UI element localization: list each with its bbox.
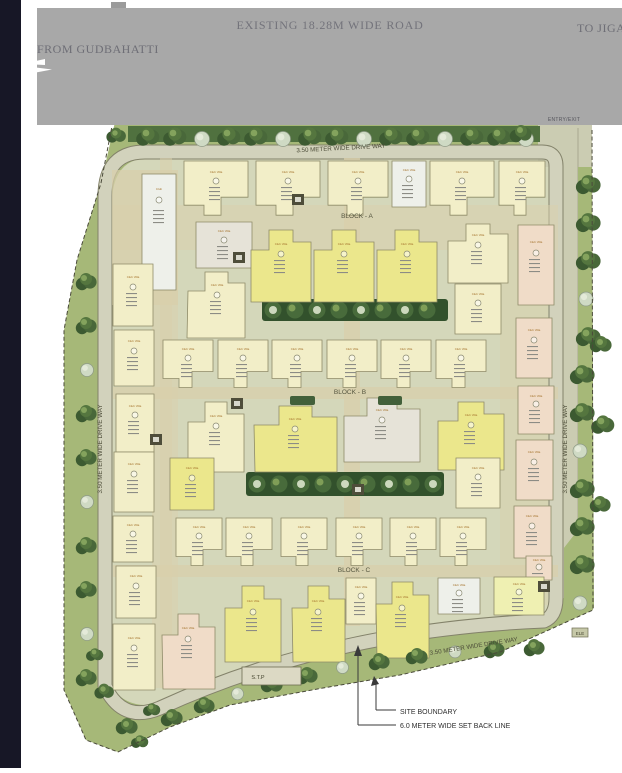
svg-text:Club Villa: Club Villa	[407, 525, 420, 529]
svg-text:Club Villa: Club Villa	[516, 170, 529, 174]
svg-text:BLOCK - A: BLOCK - A	[341, 213, 373, 220]
svg-text:Club Villa: Club Villa	[403, 168, 416, 172]
svg-text:Club Villa: Club Villa	[338, 242, 351, 246]
svg-text:Club Villa: Club Villa	[528, 450, 541, 454]
svg-text:Club Villa: Club Villa	[182, 626, 195, 630]
svg-text:Club Villa: Club Villa	[247, 599, 260, 603]
svg-text:Club Villa: Club Villa	[401, 242, 414, 246]
svg-text:Club Villa: Club Villa	[128, 636, 141, 640]
svg-text:Club Villa: Club Villa	[298, 525, 311, 529]
svg-text:Club Villa: Club Villa	[528, 328, 541, 332]
svg-text:SITE BOUNDARY: SITE BOUNDARY	[400, 709, 457, 716]
svg-text:EXISTING 18.28M WIDE ROAD: EXISTING 18.28M WIDE ROAD	[236, 18, 423, 32]
svg-text:Club Villa: Club Villa	[453, 583, 466, 587]
svg-text:Club Villa: Club Villa	[533, 558, 546, 562]
svg-text:Club: Club	[156, 187, 163, 191]
svg-text:3.50 METER WIDE DRIVE WAY: 3.50 METER WIDE DRIVE WAY	[562, 404, 569, 493]
svg-text:Club Villa: Club Villa	[282, 170, 295, 174]
svg-text:Club Villa: Club Villa	[243, 525, 256, 529]
svg-text:Club Villa: Club Villa	[289, 417, 302, 421]
svg-text:Club Villa: Club Villa	[275, 242, 288, 246]
svg-text:Club Villa: Club Villa	[210, 170, 223, 174]
svg-text:Club Villa: Club Villa	[526, 514, 539, 518]
svg-text:Club Villa: Club Villa	[210, 414, 223, 418]
svg-text:ELE: ELE	[576, 631, 585, 636]
svg-text:Club Villa: Club Villa	[513, 582, 526, 586]
svg-text:Club Villa: Club Villa	[400, 347, 413, 351]
svg-text:Club Villa: Club Villa	[353, 525, 366, 529]
svg-text:Club Villa: Club Villa	[129, 404, 142, 408]
svg-text:TO JIGANI: TO JIGANI	[577, 21, 622, 35]
svg-text:Club Villa: Club Villa	[211, 283, 224, 287]
svg-text:Club Villa: Club Villa	[218, 229, 231, 233]
svg-text:Club Villa: Club Villa	[193, 525, 206, 529]
svg-text:Club Villa: Club Villa	[237, 347, 250, 351]
svg-text:Club Villa: Club Villa	[127, 275, 140, 279]
svg-text:Club Villa: Club Villa	[465, 413, 478, 417]
svg-text:Club Villa: Club Villa	[352, 170, 365, 174]
svg-text:Club Villa: Club Villa	[355, 585, 368, 589]
svg-text:Club Villa: Club Villa	[456, 170, 469, 174]
svg-text:Club Villa: Club Villa	[472, 466, 485, 470]
svg-text:Club Villa: Club Villa	[291, 347, 304, 351]
svg-text:Club Villa: Club Villa	[472, 292, 485, 296]
svg-text:S.T.P: S.T.P	[251, 675, 264, 681]
svg-text:FROM GUDBAHATTI: FROM GUDBAHATTI	[37, 42, 159, 56]
svg-text:Club Villa: Club Villa	[128, 462, 141, 466]
svg-text:Club Villa: Club Villa	[376, 408, 389, 412]
svg-text:Club Villa: Club Villa	[186, 466, 199, 470]
svg-text:Club Villa: Club Villa	[130, 574, 143, 578]
svg-text:Club Villa: Club Villa	[472, 233, 485, 237]
svg-text:Club Villa: Club Villa	[396, 595, 409, 599]
svg-text:3.50 METER WIDE DRIVE WAY: 3.50 METER WIDE DRIVE WAY	[97, 404, 104, 493]
svg-text:Club Villa: Club Villa	[530, 394, 543, 398]
svg-text:Club Villa: Club Villa	[457, 525, 470, 529]
svg-text:Club Villa: Club Villa	[127, 523, 140, 527]
svg-text:Club Villa: Club Villa	[182, 347, 195, 351]
svg-text:ENTRY/EXIT: ENTRY/EXIT	[548, 117, 580, 123]
svg-text:BLOCK - C: BLOCK - C	[338, 567, 371, 574]
svg-text:Club Villa: Club Villa	[346, 347, 359, 351]
svg-text:BLOCK - B: BLOCK - B	[334, 389, 366, 396]
svg-text:Club Villa: Club Villa	[312, 599, 325, 603]
svg-text:Club Villa: Club Villa	[455, 347, 468, 351]
svg-text:Club Villa: Club Villa	[128, 339, 141, 343]
svg-text:6.0 METER WIDE SET BACK LINE: 6.0 METER WIDE SET BACK LINE	[400, 723, 511, 730]
svg-text:Club Villa: Club Villa	[530, 240, 543, 244]
